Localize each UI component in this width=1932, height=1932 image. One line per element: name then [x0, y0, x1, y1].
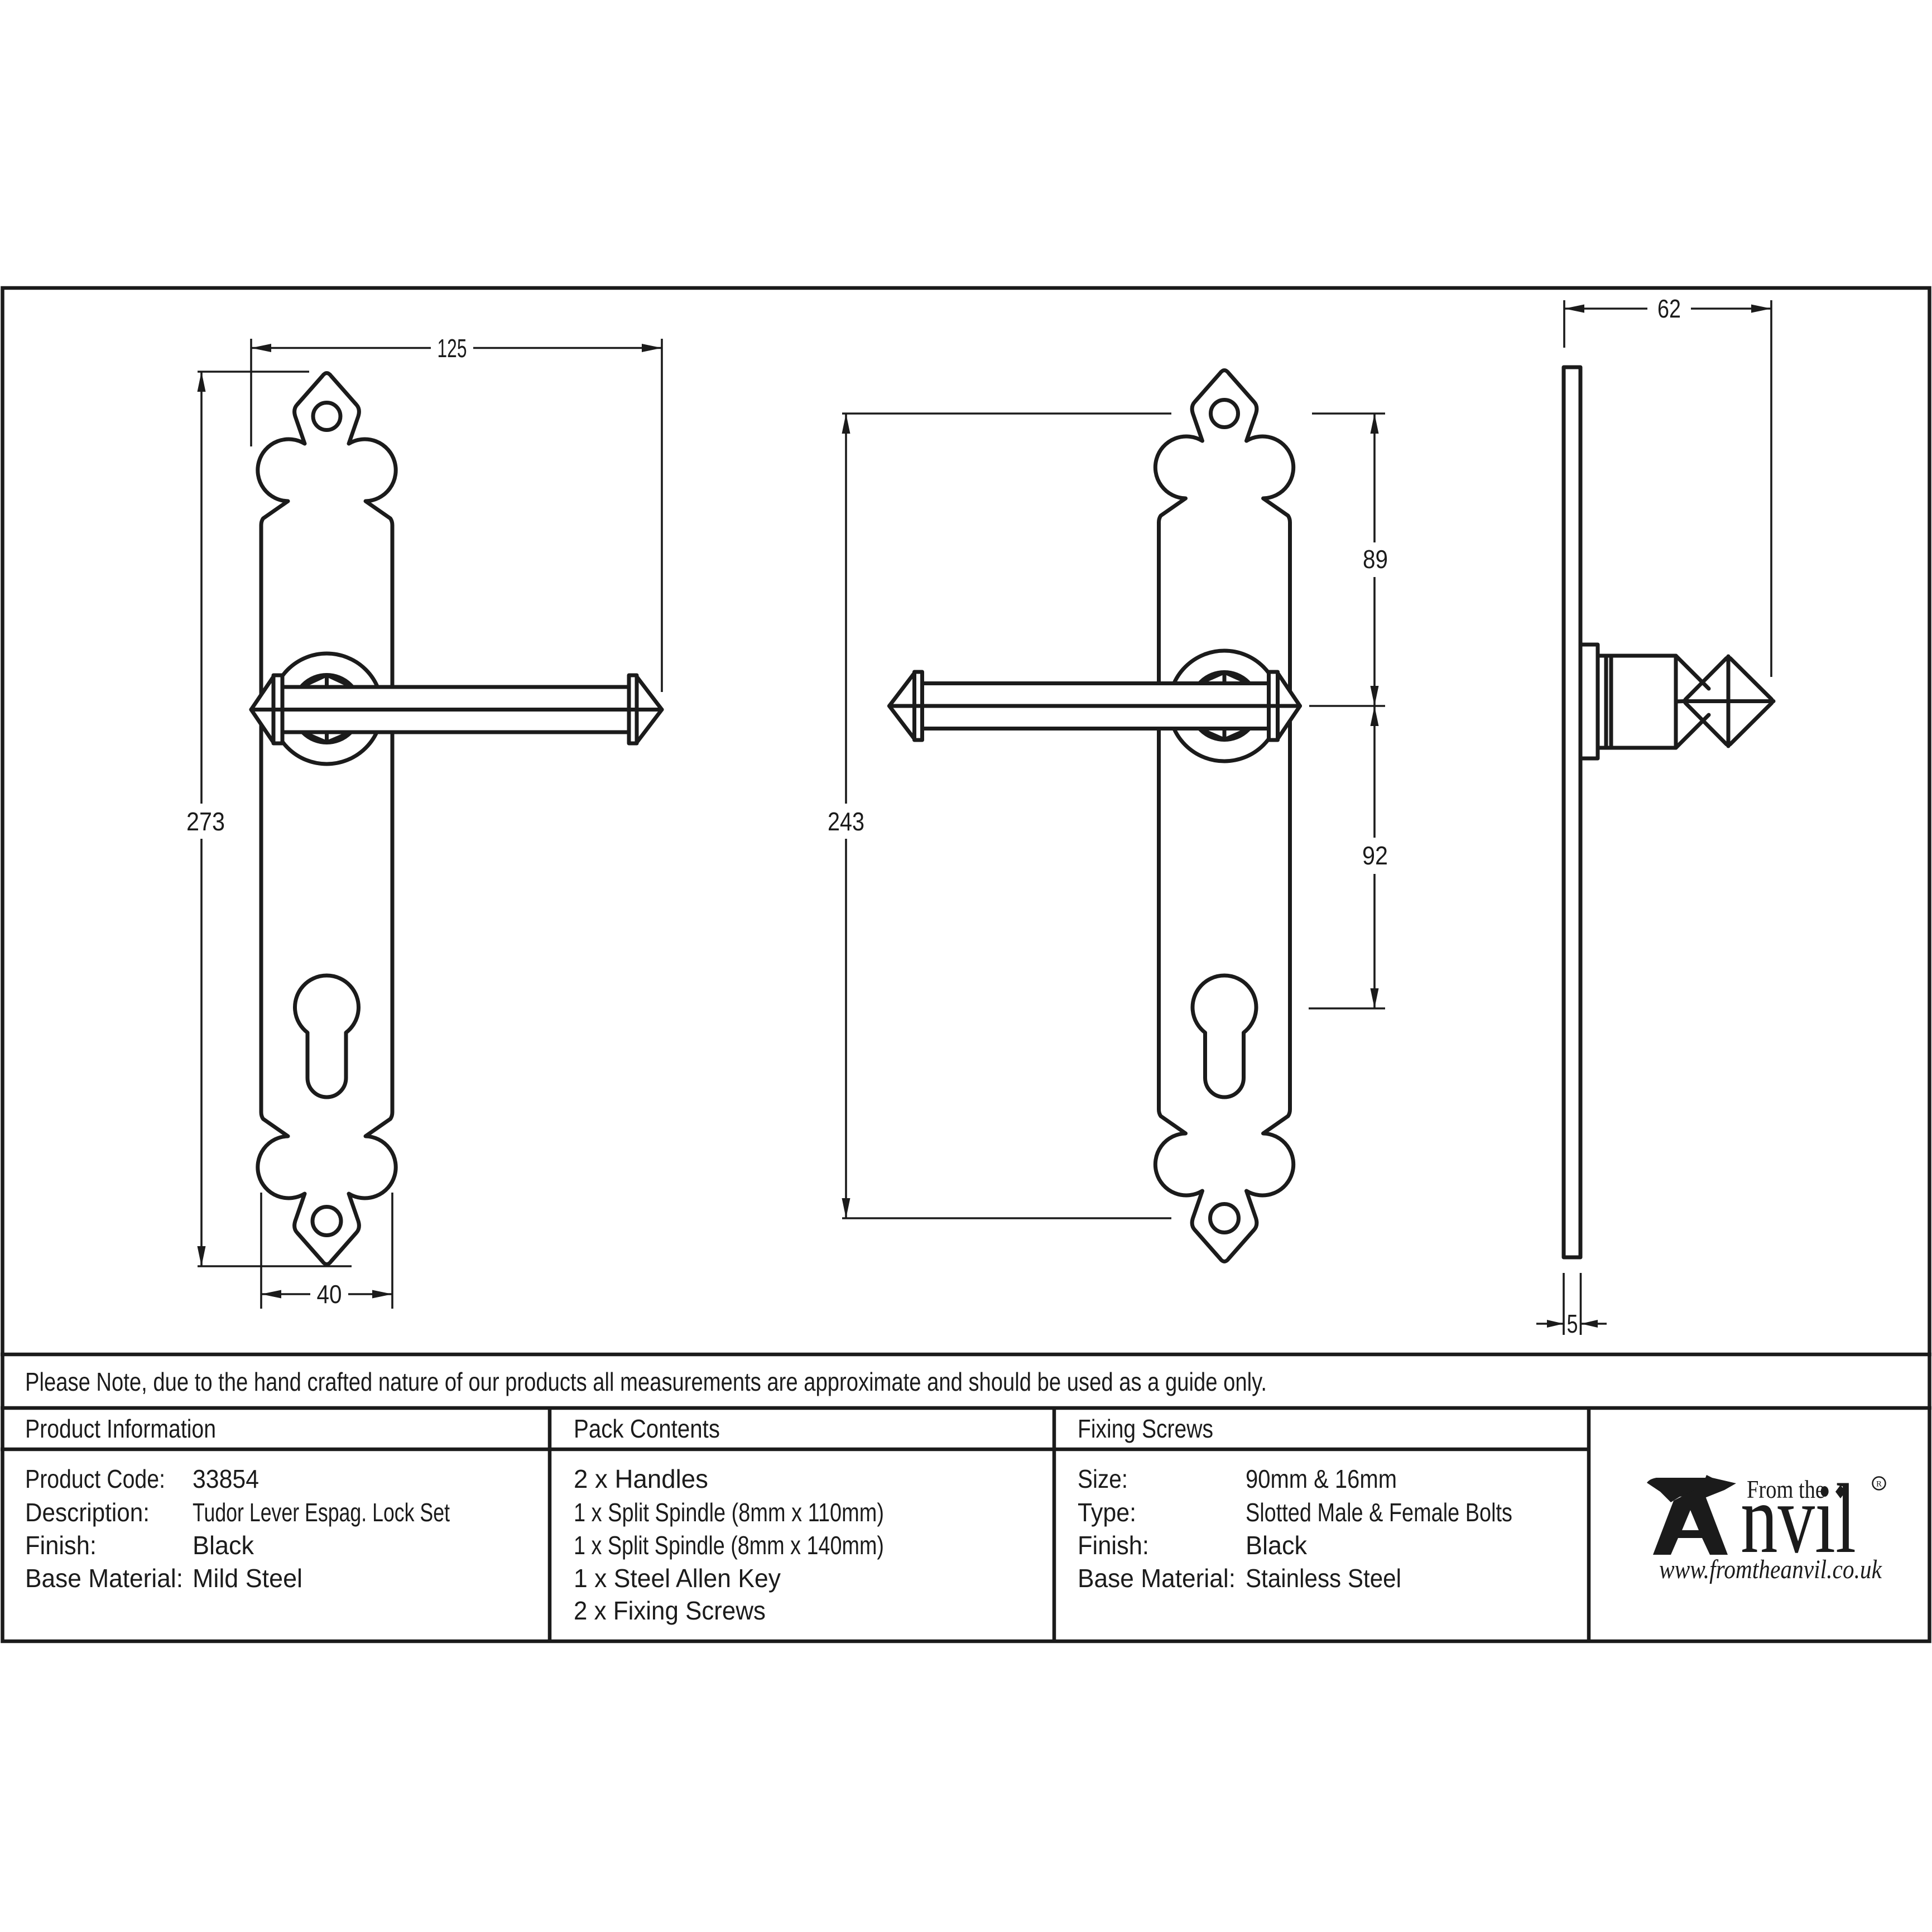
svg-text:1 x Steel Allen Key: 1 x Steel Allen Key [574, 1564, 781, 1593]
svg-text:Product Code:: Product Code: [25, 1464, 165, 1493]
svg-text:243: 243 [828, 807, 864, 836]
svg-text:Finish:: Finish: [1078, 1531, 1149, 1560]
svg-text:Base Material:: Base Material: [25, 1564, 183, 1593]
svg-text:62: 62 [1657, 294, 1681, 323]
svg-text:5: 5 [1567, 1309, 1578, 1338]
svg-text:1 x Split Spindle (8mm x 140mm: 1 x Split Spindle (8mm x 140mm) [574, 1531, 884, 1560]
svg-text:Stainless Steel: Stainless Steel [1246, 1564, 1401, 1593]
svg-text:www.fromtheanvil.co.uk: www.fromtheanvil.co.uk [1659, 1555, 1882, 1584]
svg-text:89: 89 [1363, 545, 1388, 574]
svg-text:Please Note, due to the hand c: Please Note, due to the hand crafted nat… [25, 1367, 1267, 1396]
svg-text:Tudor Lever Espag. Lock Set: Tudor Lever Espag. Lock Set [193, 1498, 450, 1527]
svg-text:40: 40 [317, 1280, 342, 1309]
svg-text:Mild Steel: Mild Steel [193, 1564, 302, 1593]
svg-text:Black: Black [1246, 1531, 1308, 1560]
svg-text:1 x Split Spindle (8mm x 110mm: 1 x Split Spindle (8mm x 110mm) [574, 1498, 884, 1527]
svg-text:33854: 33854 [193, 1464, 259, 1493]
svg-text:2 x Fixing Screws: 2 x Fixing Screws [574, 1596, 766, 1625]
svg-text:Size:: Size: [1078, 1464, 1128, 1493]
svg-text:Description:: Description: [25, 1498, 150, 1527]
svg-text:Base Material:: Base Material: [1078, 1564, 1236, 1593]
svg-text:92: 92 [1362, 841, 1388, 870]
svg-text:2 x Handles: 2 x Handles [574, 1464, 708, 1493]
svg-text:90mm & 16mm: 90mm & 16mm [1246, 1464, 1397, 1493]
svg-text:Black: Black [193, 1531, 254, 1560]
svg-text:R: R [1876, 1480, 1882, 1489]
svg-text:Finish:: Finish: [25, 1531, 97, 1560]
svg-text:Product Information: Product Information [25, 1414, 216, 1443]
svg-text:Type:: Type: [1078, 1498, 1136, 1527]
svg-text:273: 273 [186, 807, 225, 836]
svg-text:125: 125 [438, 334, 467, 363]
svg-text:Slotted Male & Female Bolts: Slotted Male & Female Bolts [1246, 1498, 1512, 1527]
svg-text:Fixing Screws: Fixing Screws [1078, 1414, 1213, 1443]
svg-text:Pack Contents: Pack Contents [574, 1414, 720, 1443]
